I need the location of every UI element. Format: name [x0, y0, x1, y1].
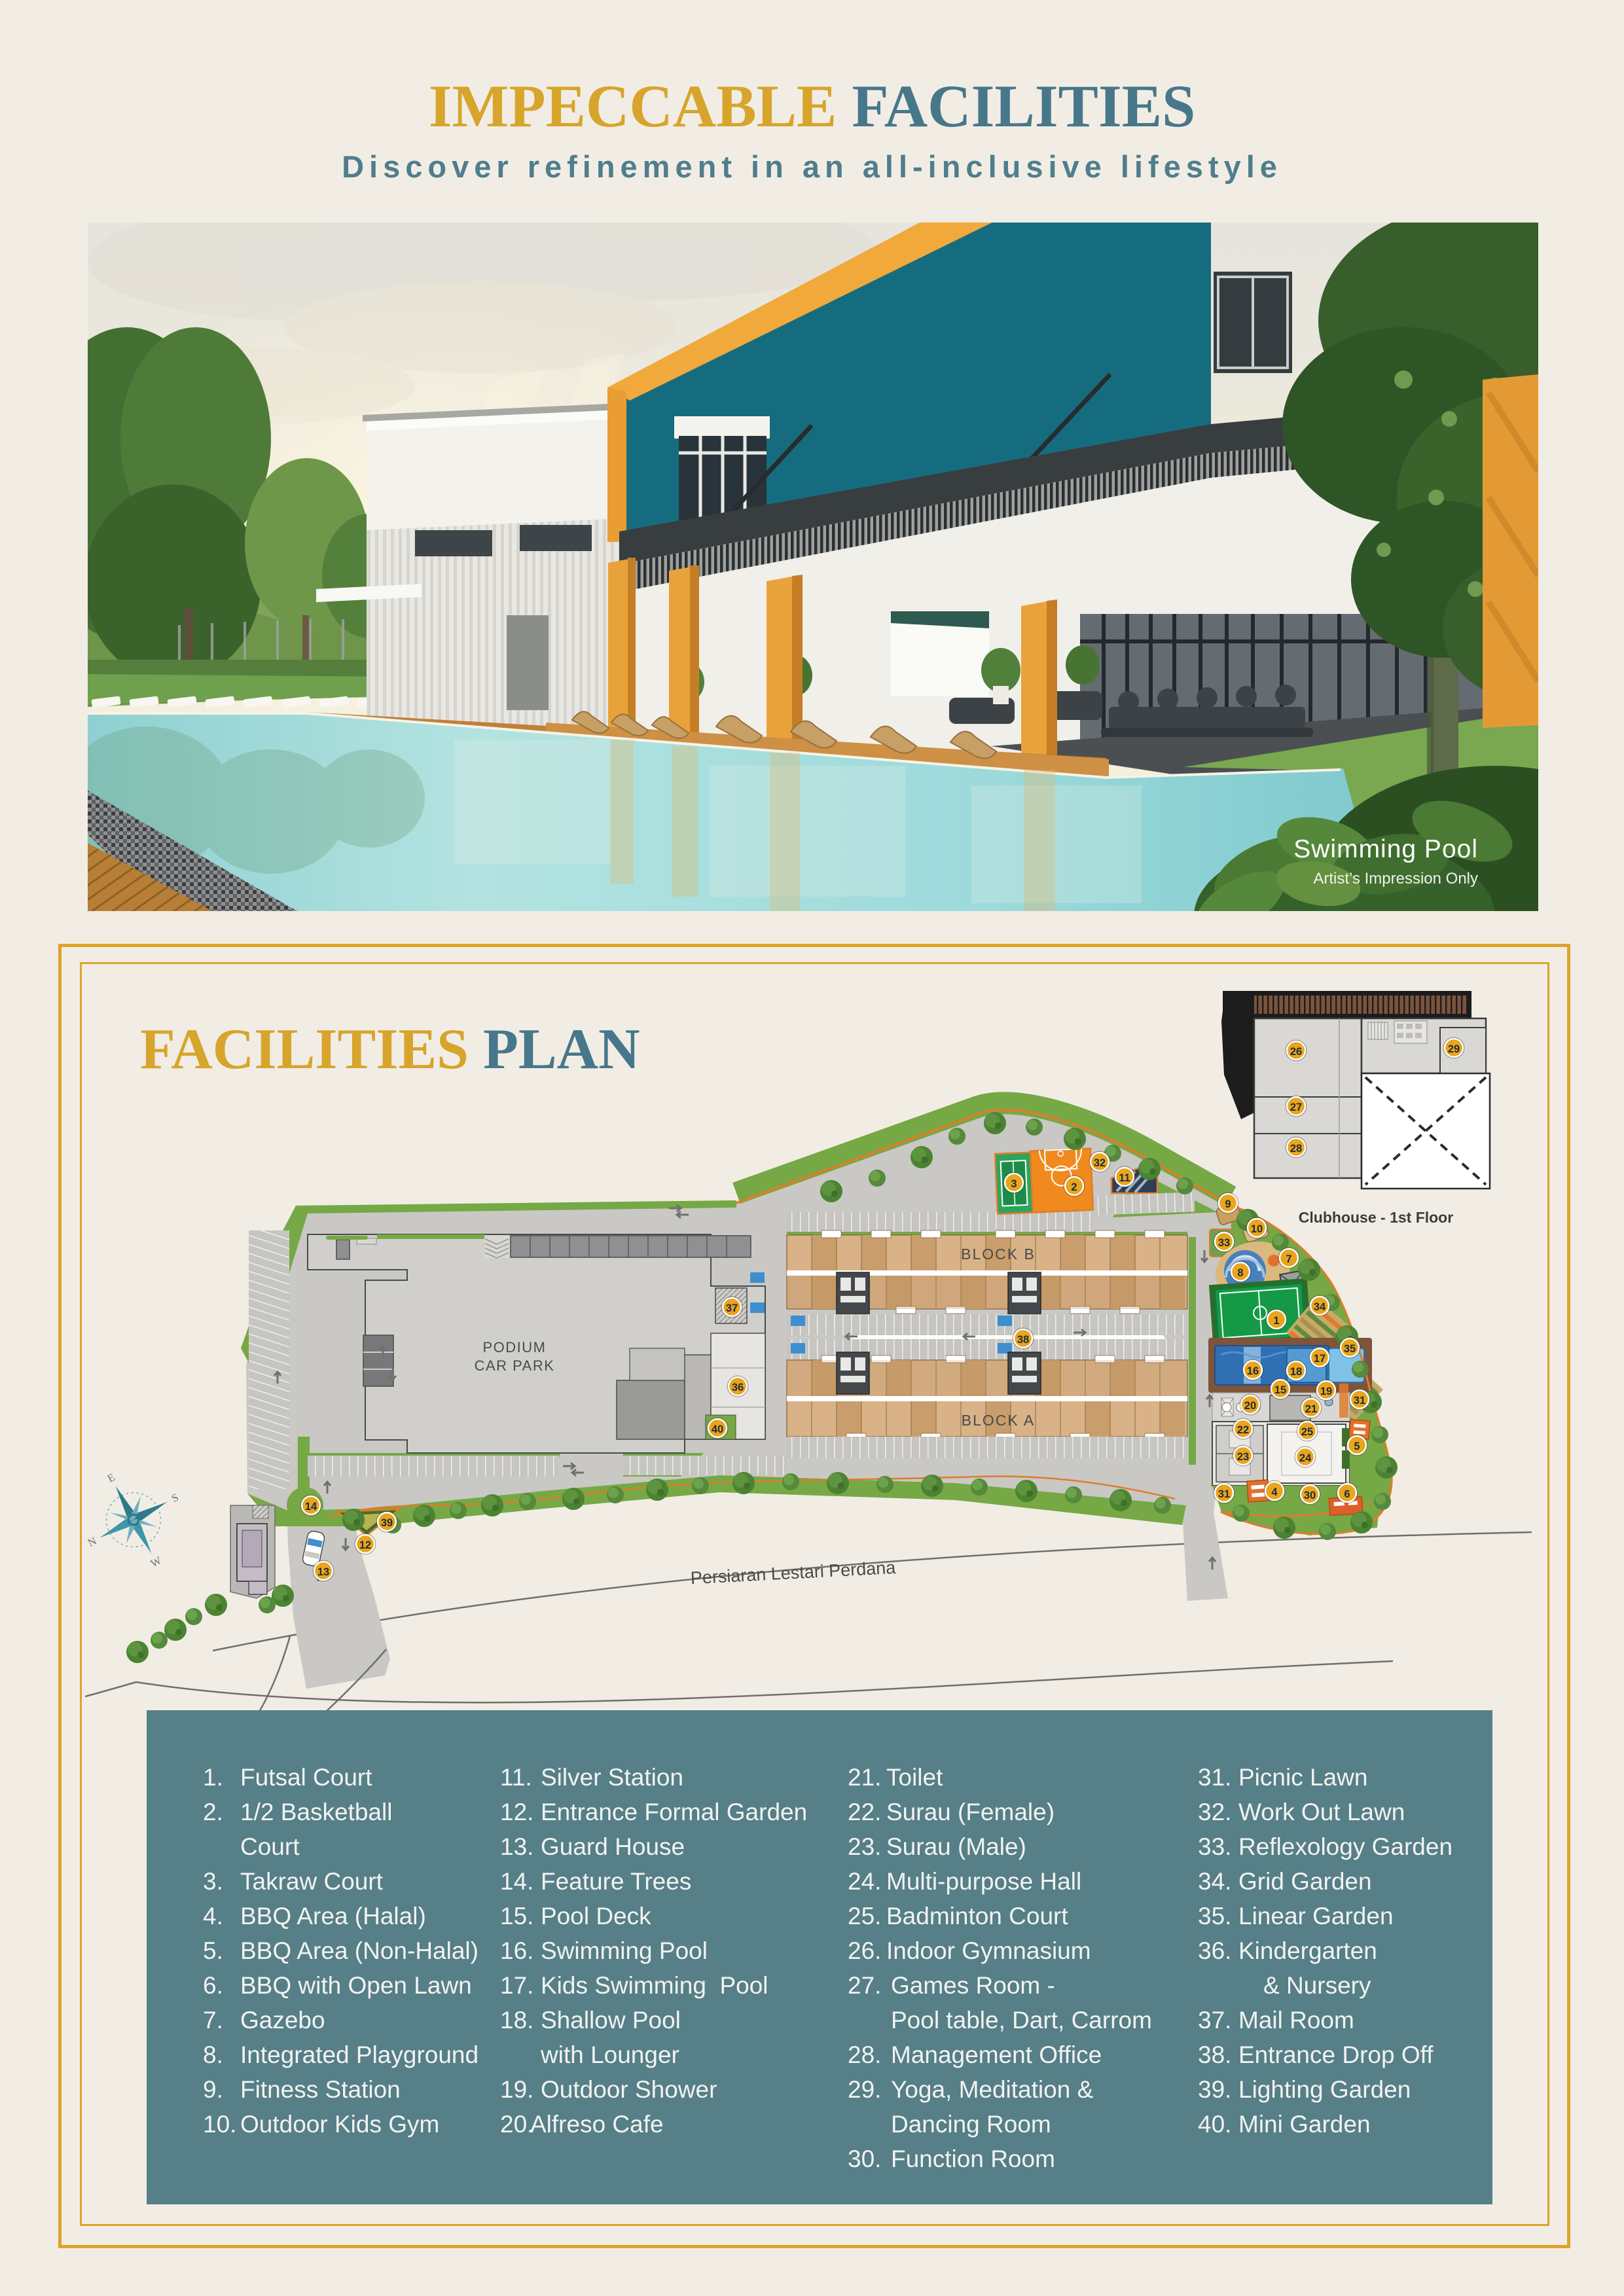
svg-text:BLOCK A: BLOCK A	[962, 1412, 1035, 1429]
svg-text:23: 23	[1237, 1451, 1249, 1463]
svg-text:35: 35	[1344, 1343, 1356, 1355]
svg-text:8: 8	[1237, 1267, 1243, 1279]
svg-text:4: 4	[1271, 1486, 1278, 1498]
svg-text:26: 26	[1290, 1046, 1302, 1058]
svg-text:18: 18	[1290, 1366, 1302, 1378]
svg-text:PODIUM: PODIUM	[483, 1339, 547, 1355]
svg-text:3: 3	[1011, 1178, 1017, 1190]
svg-text:2: 2	[1071, 1181, 1077, 1193]
svg-text:W: W	[149, 1554, 164, 1570]
svg-text:BLOCK B: BLOCK B	[961, 1246, 1036, 1263]
svg-text:25: 25	[1301, 1426, 1313, 1438]
svg-text:21: 21	[1305, 1403, 1317, 1415]
svg-text:Clubhouse - 1st Floor: Clubhouse - 1st Floor	[1299, 1209, 1453, 1226]
svg-text:CAR PARK: CAR PARK	[475, 1357, 555, 1374]
svg-text:30: 30	[1304, 1490, 1316, 1501]
svg-text:S: S	[170, 1491, 181, 1505]
svg-text:6: 6	[1344, 1488, 1350, 1500]
svg-text:20: 20	[1244, 1400, 1256, 1412]
svg-text:11: 11	[1119, 1172, 1130, 1184]
svg-text:N: N	[86, 1535, 99, 1549]
svg-text:28: 28	[1290, 1143, 1302, 1155]
svg-text:27: 27	[1290, 1102, 1302, 1113]
svg-text:38: 38	[1017, 1334, 1029, 1346]
svg-text:1: 1	[1273, 1315, 1279, 1327]
svg-text:16: 16	[1247, 1365, 1259, 1377]
svg-text:Artist’s Impression Only: Artist’s Impression Only	[1313, 870, 1478, 888]
svg-text:19: 19	[1320, 1386, 1332, 1397]
svg-text:Swimming Pool: Swimming Pool	[1293, 835, 1478, 863]
svg-text:33: 33	[1218, 1237, 1230, 1249]
svg-text:34: 34	[1314, 1301, 1326, 1313]
svg-text:Persiaran Lestari Perdana: Persiaran Lestari Perdana	[690, 1558, 897, 1588]
svg-text:36: 36	[732, 1382, 744, 1393]
svg-text:E: E	[105, 1471, 117, 1485]
svg-text:13: 13	[317, 1566, 329, 1578]
svg-text:10: 10	[1251, 1223, 1263, 1235]
svg-text:29: 29	[1448, 1043, 1460, 1055]
svg-text:31: 31	[1354, 1395, 1365, 1407]
svg-text:24: 24	[1299, 1452, 1312, 1464]
svg-text:12: 12	[359, 1539, 371, 1551]
svg-text:5: 5	[1354, 1441, 1360, 1452]
svg-text:40: 40	[712, 1424, 723, 1435]
svg-text:22: 22	[1237, 1424, 1249, 1436]
svg-text:39: 39	[381, 1517, 393, 1529]
svg-text:31: 31	[1218, 1488, 1230, 1500]
svg-text:7: 7	[1286, 1253, 1291, 1265]
svg-text:37: 37	[726, 1302, 738, 1314]
svg-text:15: 15	[1274, 1384, 1286, 1396]
svg-text:9: 9	[1225, 1198, 1231, 1210]
svg-text:17: 17	[1314, 1353, 1326, 1365]
svg-text:14: 14	[305, 1501, 317, 1513]
svg-text:32: 32	[1094, 1157, 1106, 1169]
